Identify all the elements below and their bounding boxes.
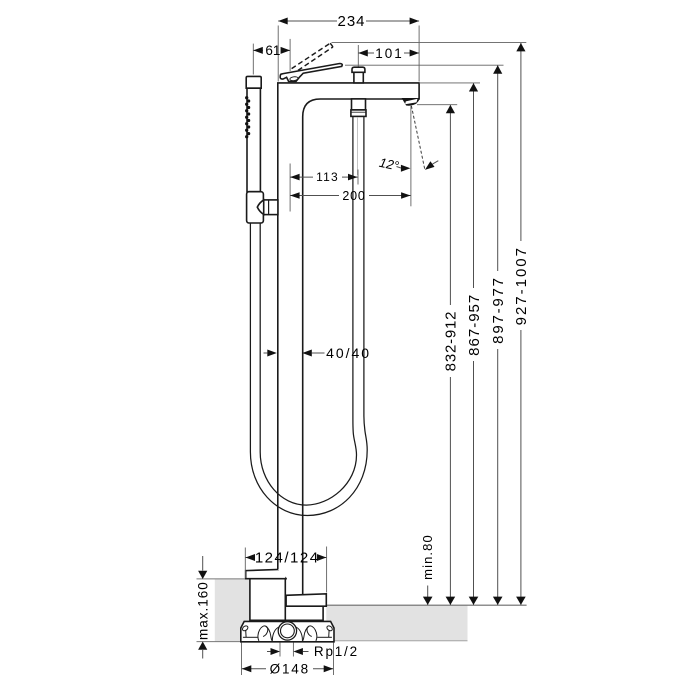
svg-text:927-1007: 927-1007 — [513, 246, 530, 325]
svg-text:113: 113 — [316, 170, 339, 184]
svg-text:Ø148: Ø148 — [270, 662, 310, 677]
svg-text:min.80: min.80 — [420, 534, 435, 580]
svg-text:101: 101 — [375, 46, 404, 61]
svg-text:Rp1/2: Rp1/2 — [314, 644, 359, 659]
svg-text:897-977: 897-977 — [490, 276, 507, 344]
svg-text:40/40: 40/40 — [326, 345, 371, 361]
svg-text:61: 61 — [265, 43, 280, 58]
svg-text:234: 234 — [337, 13, 365, 30]
svg-text:867-957: 867-957 — [466, 294, 483, 356]
svg-text:200: 200 — [342, 189, 365, 203]
svg-text:max.160: max.160 — [196, 581, 211, 640]
svg-text:832-912: 832-912 — [443, 311, 460, 372]
svg-text:124/124: 124/124 — [255, 550, 320, 567]
